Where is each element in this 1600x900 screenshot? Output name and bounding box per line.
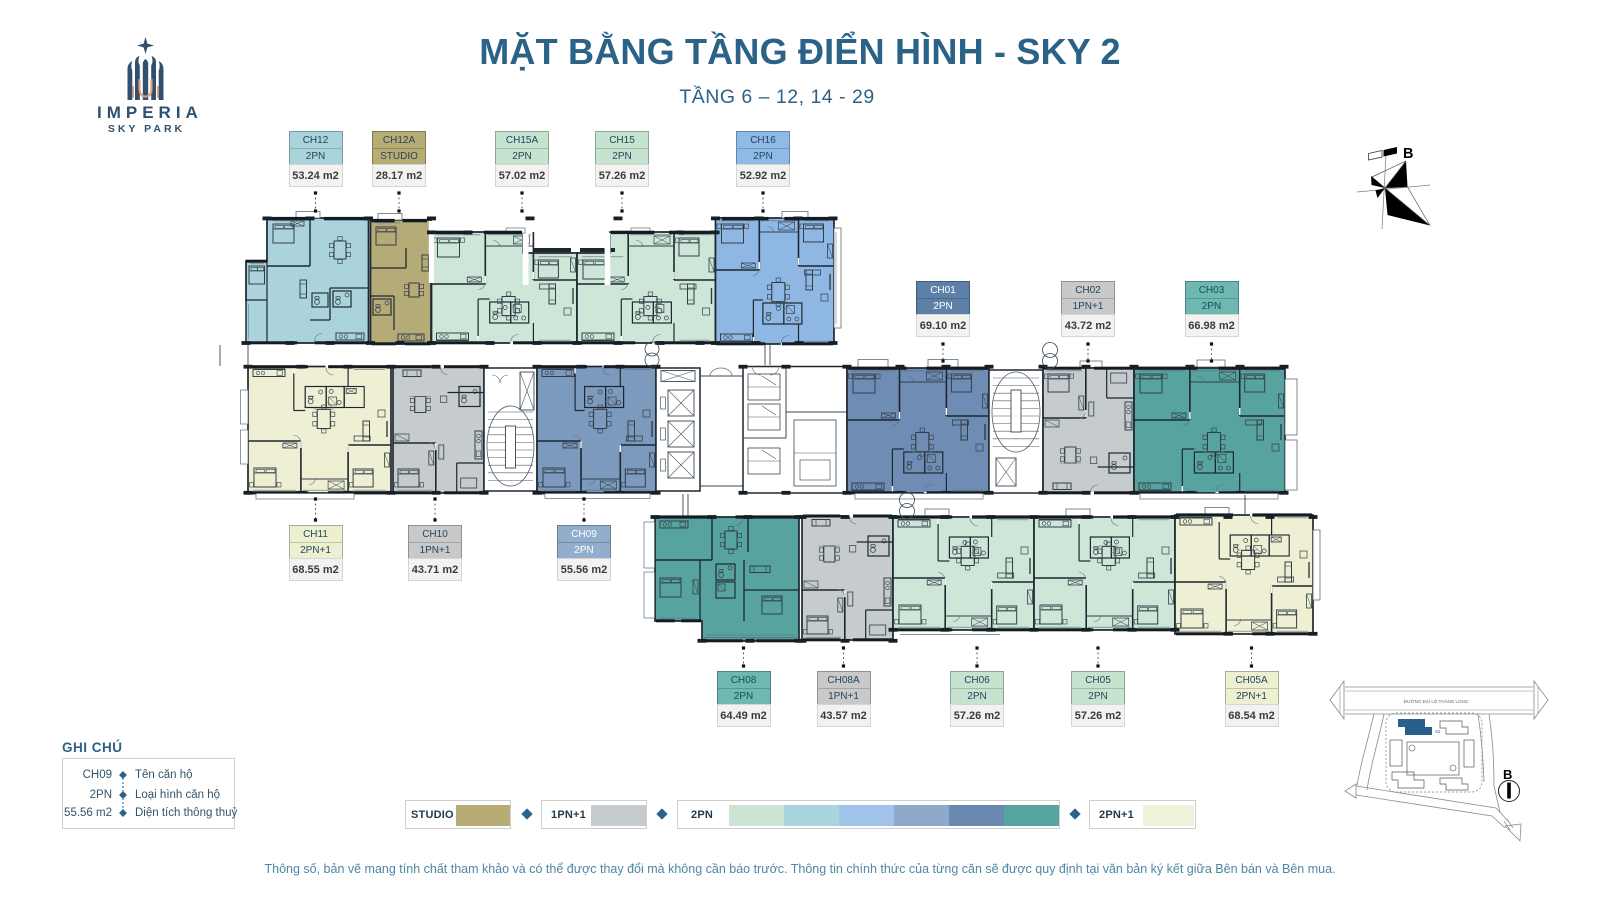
svg-text:ĐƯỜNG ĐẠI LỘ THĂNG LONG: ĐƯỜNG ĐẠI LỘ THĂNG LONG [1404,698,1469,704]
svg-text:B: B [1503,767,1512,782]
svg-text:S2: S2 [1435,729,1441,734]
svg-text:B: B [1403,146,1413,162]
